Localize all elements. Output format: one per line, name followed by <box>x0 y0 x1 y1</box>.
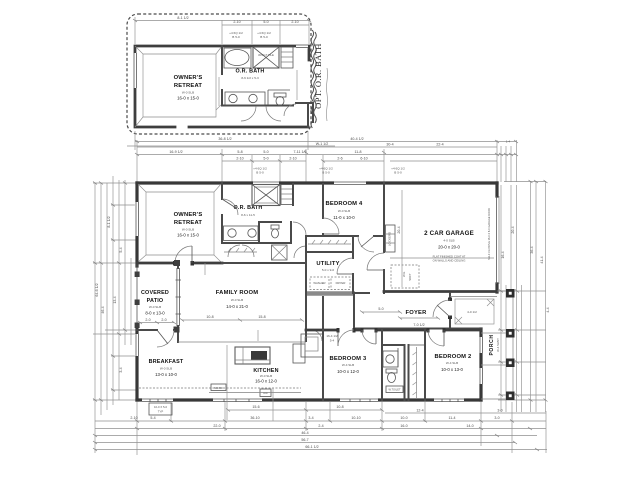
svg-text:DRYER: DRYER <box>336 281 346 285</box>
svg-text:W-0 SLB: W-0 SLB <box>160 367 172 371</box>
svg-text:W/SGT TILE: W/SGT TILE <box>258 53 274 57</box>
svg-text:4-0 1/2: 4-0 1/2 <box>467 310 477 314</box>
svg-text:46-4: 46-4 <box>101 306 105 313</box>
svg-text:W-4 SLB: W-4 SLB <box>342 363 354 367</box>
svg-text:14-0: 14-0 <box>466 424 473 428</box>
svg-text:4-0 SLB: 4-0 SLB <box>443 239 454 243</box>
svg-text:2 CAR GARAGE: 2 CAR GARAGE <box>424 230 474 237</box>
svg-text:6-10: 6-10 <box>360 156 367 160</box>
svg-text:W-0 SLB: W-0 SLB <box>182 228 194 232</box>
svg-text:40-4 1/2: 40-4 1/2 <box>350 137 363 141</box>
svg-text:OWNER'S: OWNER'S <box>174 212 203 218</box>
svg-text:16-4 1/2: 16-4 1/2 <box>326 334 338 338</box>
svg-text:W.TOILET: W.TOILET <box>388 388 400 392</box>
svg-text:8-0 x 13-0: 8-0 x 13-0 <box>145 311 165 316</box>
svg-text:5-8: 5-8 <box>237 150 242 154</box>
svg-text:LOCKERS: LOCKERS <box>388 232 392 246</box>
svg-text:BEDROOM 4: BEDROOM 4 <box>326 201 363 207</box>
svg-text:W-0 SLB: W-0 SLB <box>231 298 243 302</box>
svg-text:UTILITY: UTILITY <box>316 261 339 267</box>
svg-text:14-0 x 21-0: 14-0 x 21-0 <box>226 304 248 309</box>
svg-text:5-0: 5-0 <box>263 20 268 24</box>
svg-text:16-0: 16-0 <box>400 424 407 428</box>
svg-text:10-0 x 12-0: 10-0 x 12-0 <box>337 369 359 374</box>
svg-text:FAMILY ROOM: FAMILY ROOM <box>216 290 258 296</box>
svg-text:10-8: 10-8 <box>336 405 343 409</box>
svg-text:B 5-0: B 5-0 <box>260 35 268 39</box>
svg-text:W-4 SLB/T: W-4 SLB/T <box>496 338 500 352</box>
svg-text:W-1 1/2: W-1 1/2 <box>316 142 329 146</box>
svg-text:56-7: 56-7 <box>301 438 308 442</box>
svg-text:OWNER'S: OWNER'S <box>174 75 203 81</box>
svg-text:WASHER: WASHER <box>313 281 325 285</box>
svg-text:13-0 x 10-0: 13-0 x 10-0 <box>155 372 177 377</box>
svg-text:20-4: 20-4 <box>511 226 515 233</box>
svg-text:11-8: 11-8 <box>355 150 362 154</box>
svg-text:41-4: 41-4 <box>540 256 544 263</box>
svg-text:8-1 1/2: 8-1 1/2 <box>107 216 111 227</box>
svg-text:5-0: 5-0 <box>263 156 268 160</box>
svg-text:8-6 x 11-5: 8-6 x 11-5 <box>241 213 255 217</box>
svg-text:W-0 SLB: W-0 SLB <box>338 209 350 213</box>
svg-text:PATIO: PATIO <box>147 298 164 304</box>
svg-text:2-10: 2-10 <box>233 20 240 24</box>
svg-text:11-0 x 10-0: 11-0 x 10-0 <box>333 215 355 220</box>
svg-text:2-10: 2-10 <box>130 416 137 420</box>
svg-text:FOYER: FOYER <box>406 310 428 316</box>
svg-text:10-0 X 5-0: 10-0 X 5-0 <box>154 405 168 409</box>
svg-text:2-10: 2-10 <box>289 156 296 160</box>
svg-text:11-4: 11-4 <box>449 416 456 420</box>
svg-text:8-1 1/2: 8-1 1/2 <box>177 16 188 20</box>
svg-text:3-4: 3-4 <box>119 367 123 372</box>
svg-text:2-10: 2-10 <box>291 20 298 24</box>
svg-text:BREAKFAST: BREAKFAST <box>149 359 184 365</box>
svg-text:5-4: 5-4 <box>330 339 335 343</box>
svg-text:4-4: 4-4 <box>546 307 550 312</box>
svg-text:22-4: 22-4 <box>436 142 443 146</box>
svg-text:36-10: 36-10 <box>250 416 259 420</box>
svg-text:COVERED: COVERED <box>141 290 169 296</box>
svg-text:46-4: 46-4 <box>301 431 308 435</box>
svg-text:W-0 SLB: W-0 SLB <box>149 305 161 309</box>
svg-text:2-0: 2-0 <box>161 318 166 322</box>
svg-text:3-0: 3-0 <box>497 409 502 413</box>
svg-text:ON WALLS AND CEILING: ON WALLS AND CEILING <box>433 259 466 263</box>
svg-text:36-4: 36-4 <box>530 246 534 253</box>
svg-text:20-4: 20-4 <box>397 226 401 233</box>
svg-text:15-6: 15-6 <box>252 405 259 409</box>
svg-text:W-0 SLB: W-0 SLB <box>260 374 272 378</box>
svg-text:16-9 1/2: 16-9 1/2 <box>169 150 182 154</box>
svg-text:W-0 SLB: W-0 SLB <box>182 91 194 95</box>
svg-text:36-8 1/2: 36-8 1/2 <box>218 137 231 141</box>
svg-text:10-10: 10-10 <box>351 416 360 420</box>
svg-text:RETREAT: RETREAT <box>174 220 203 226</box>
svg-text:22-0: 22-0 <box>213 424 220 428</box>
svg-text:SOFT: SOFT <box>408 273 412 281</box>
svg-text:15-8: 15-8 <box>258 315 265 319</box>
svg-text:2-0: 2-0 <box>145 318 150 322</box>
svg-text:2-10: 2-10 <box>236 156 243 160</box>
svg-text:1-4: 1-4 <box>506 140 511 144</box>
svg-text:W-4 SLB: W-4 SLB <box>446 361 458 365</box>
svg-text:16-4: 16-4 <box>501 251 505 258</box>
svg-text:5-0: 5-0 <box>378 307 383 311</box>
svg-text:2-6: 2-6 <box>337 156 342 160</box>
svg-text:DW: DW <box>263 391 268 395</box>
svg-text:16-0 x 12-0: 16-0 x 12-0 <box>255 379 277 384</box>
svg-text:10-0 x 13-0: 10-0 x 13-0 <box>441 367 463 372</box>
svg-text:W.H.: W.H. <box>402 271 406 277</box>
svg-text:3-4: 3-4 <box>308 416 313 420</box>
svg-text:O.R. BATH: O.R. BATH <box>236 69 265 75</box>
svg-text:B 5-0: B 5-0 <box>256 171 264 175</box>
svg-text:BEDROOM 2: BEDROOM 2 <box>435 354 472 360</box>
svg-text:5-0: 5-0 <box>263 150 268 154</box>
svg-text:3-0: 3-0 <box>494 416 499 420</box>
svg-text:B 5-0: B 5-0 <box>232 35 240 39</box>
svg-text:B 5-0: B 5-0 <box>394 171 402 175</box>
svg-text:5-0 x 9-0: 5-0 x 9-0 <box>322 268 334 272</box>
svg-text:5-4: 5-4 <box>150 416 155 420</box>
svg-text:16-0 x 15-0: 16-0 x 15-0 <box>177 96 199 101</box>
svg-text:SELF CLOSING 16-0 X 8-0 GARAGE: SELF CLOSING 16-0 X 8-0 GARAGE DOOR <box>487 208 491 260</box>
svg-text:64-6 1/2: 64-6 1/2 <box>95 283 99 296</box>
svg-text:5-4: 5-4 <box>119 247 123 252</box>
svg-text:7-0 1/2: 7-0 1/2 <box>413 323 424 327</box>
svg-text:MICRO: MICRO <box>214 386 223 390</box>
svg-text:13-4: 13-4 <box>113 296 117 303</box>
svg-text:PORCH: PORCH <box>489 334 495 355</box>
svg-text:20-0 x 20-0: 20-0 x 20-0 <box>438 245 460 250</box>
svg-text:10-8: 10-8 <box>206 315 213 319</box>
svg-text:RETREAT: RETREAT <box>174 83 203 89</box>
svg-text:B 5-0: B 5-0 <box>322 171 330 175</box>
svg-text:12-4: 12-4 <box>416 409 423 413</box>
svg-text:10-0: 10-0 <box>400 416 407 420</box>
svg-text:BEDROOM 3: BEDROOM 3 <box>330 356 367 362</box>
svg-text:TYP: TYP <box>158 410 164 414</box>
svg-text:2-4: 2-4 <box>318 424 323 428</box>
svg-text:OPT. O.R. BATH: OPT. O.R. BATH <box>313 43 323 109</box>
svg-text:30-4: 30-4 <box>386 142 393 146</box>
svg-text:16-0 x 15-0: 16-0 x 15-0 <box>177 233 199 238</box>
svg-text:66-1 1/2: 66-1 1/2 <box>305 445 318 449</box>
svg-text:8-6 1/2 x 5-3: 8-6 1/2 x 5-3 <box>241 76 259 80</box>
